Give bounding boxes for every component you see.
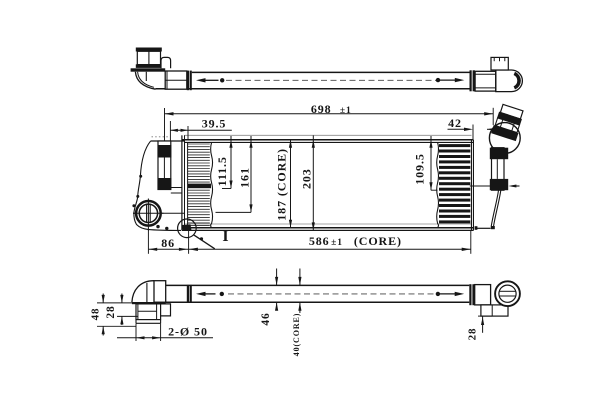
svg-text:2-Ø 50: 2-Ø 50 — [168, 325, 208, 339]
svg-text:48: 48 — [90, 308, 102, 321]
svg-text:203: 203 — [300, 168, 314, 189]
svg-text:±1: ±1 — [340, 106, 352, 116]
svg-text:28: 28 — [467, 328, 479, 341]
svg-text:698: 698 — [311, 102, 332, 116]
svg-text:109.5: 109.5 — [413, 153, 427, 185]
svg-text:(CORE): (CORE) — [354, 234, 402, 248]
svg-text:586: 586 — [309, 234, 330, 248]
svg-text:±1: ±1 — [331, 238, 343, 248]
svg-text:I: I — [222, 228, 229, 245]
svg-text:86: 86 — [161, 236, 175, 250]
svg-text:42: 42 — [448, 116, 462, 130]
svg-text:161: 161 — [238, 167, 252, 188]
svg-text:28: 28 — [105, 305, 117, 318]
svg-text:187 (CORE): 187 (CORE) — [274, 148, 288, 221]
svg-text:40(CORE): 40(CORE) — [292, 313, 301, 357]
svg-text:39.5: 39.5 — [202, 116, 227, 130]
svg-text:46: 46 — [260, 312, 272, 325]
svg-text:111.5: 111.5 — [215, 156, 229, 186]
